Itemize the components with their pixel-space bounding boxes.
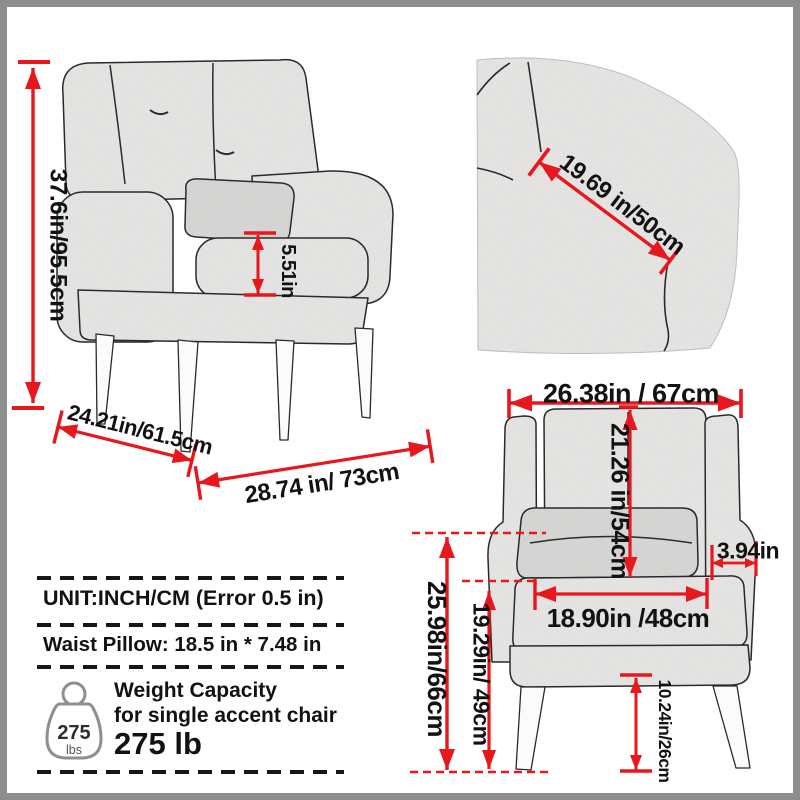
front-leg-height-arrow bbox=[620, 675, 652, 771]
side-armrest-thickness-label: 5.51in bbox=[278, 244, 298, 298]
weight-icon-unit: lbs bbox=[66, 743, 82, 757]
dashed-divider bbox=[37, 770, 344, 774]
side-view-chair-illustration bbox=[57, 60, 393, 452]
front-armrest-width-label: 3.94in bbox=[717, 540, 779, 563]
front-seat-width-label: 18.90in /48cm bbox=[547, 605, 710, 631]
front-arm-height-label: 19.29in/ 49cm bbox=[470, 602, 493, 745]
front-overall-height-label: 25.98in/66cm bbox=[424, 581, 450, 737]
weight-icon: 275 lbs bbox=[41, 681, 107, 765]
dashed-divider bbox=[37, 665, 344, 669]
front-back-height-label: 21.26 in/54cm bbox=[607, 423, 632, 579]
front-overall-width-label: 26.38in / 67cm bbox=[543, 381, 719, 408]
side-overall-height-label: 37.6in/95.5cm bbox=[45, 169, 70, 322]
dashed-divider bbox=[37, 623, 344, 627]
front-leg-height-label: 10.24in/26cm bbox=[655, 680, 673, 783]
dashed-divider bbox=[37, 576, 344, 580]
weight-capacity-subtitle: for single accent chair bbox=[114, 705, 337, 726]
weight-icon-value: 275 bbox=[57, 722, 90, 744]
waist-pillow-note: Waist Pillow: 18.5 in * 7.48 in bbox=[43, 635, 321, 656]
product-dimension-sheet: 37.6in/95.5cm 5.51in 24.21in/61.5cm 28.7… bbox=[0, 0, 800, 800]
weight-capacity-value: 275 lb bbox=[114, 728, 202, 759]
unit-note: UNIT:INCH/CM (Error 0.5 in) bbox=[43, 588, 324, 610]
weight-capacity-title: Weight Capacity bbox=[114, 680, 277, 701]
